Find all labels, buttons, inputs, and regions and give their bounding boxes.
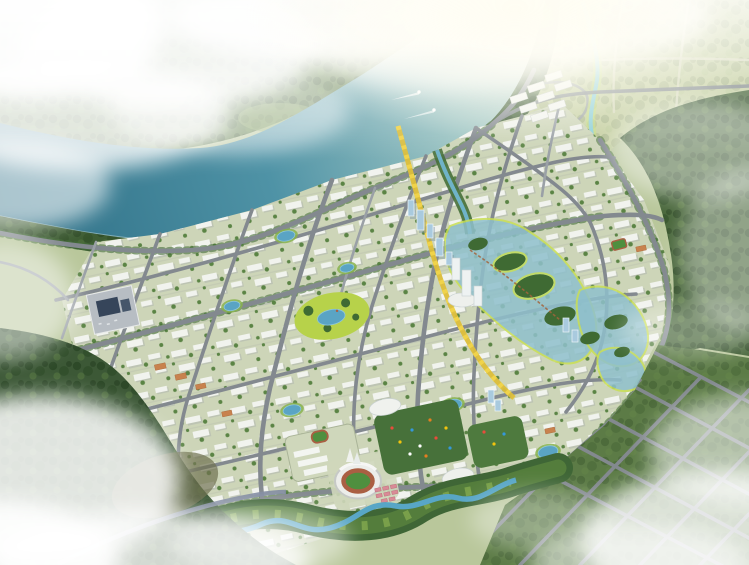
aerial-rendering <box>0 0 749 565</box>
masterplan-canvas <box>0 0 749 565</box>
